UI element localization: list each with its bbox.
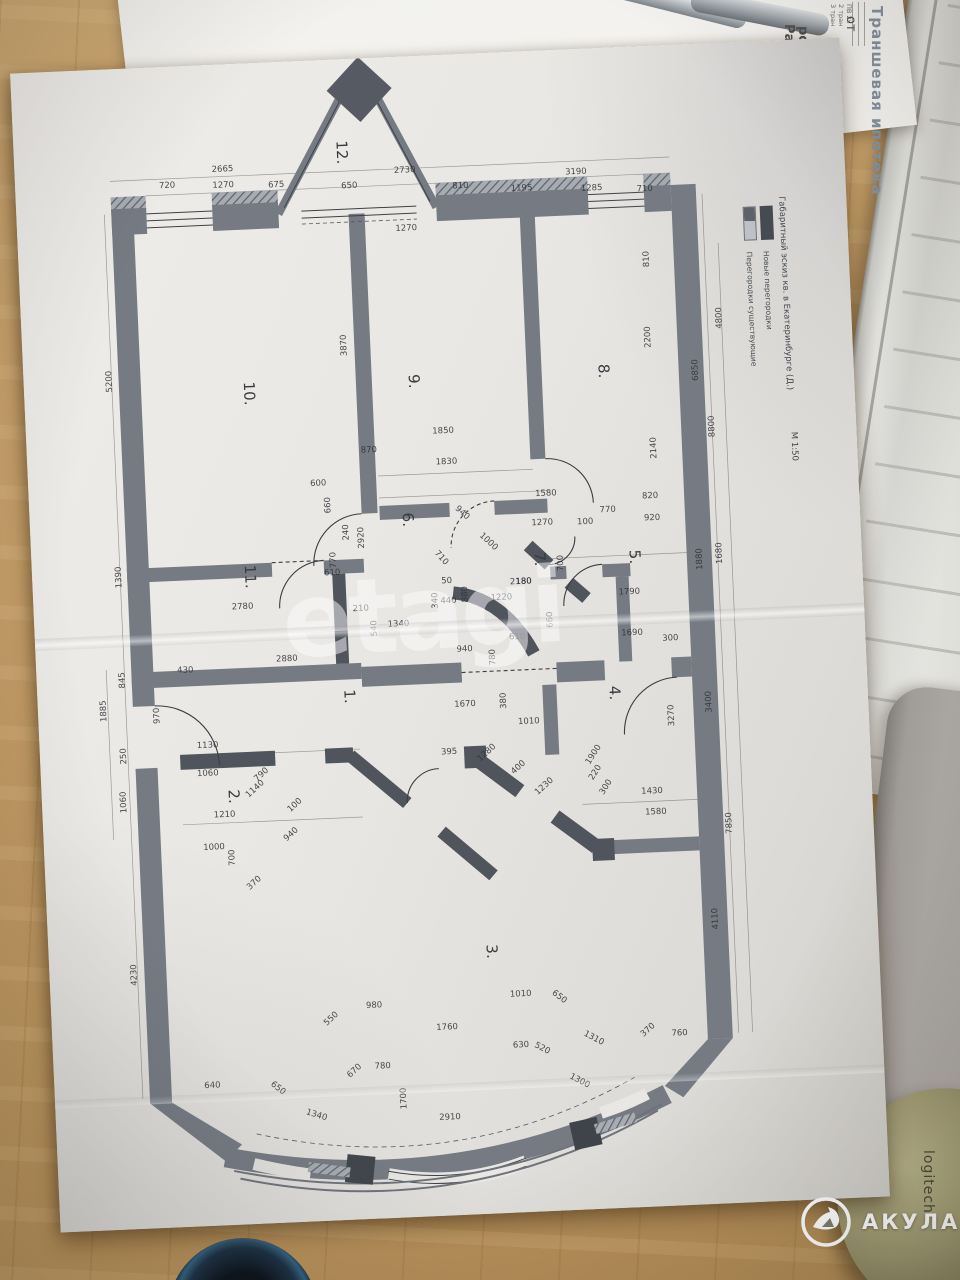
dimension-label: 1670 [454, 699, 476, 710]
dimension-label: 650 [341, 181, 358, 192]
dimension-label: 1430 [641, 786, 663, 797]
dimension-label: 1580 [535, 488, 557, 499]
dimension-label: 675 [268, 180, 285, 191]
dimension-label: 300 [598, 778, 615, 797]
top-bay [272, 54, 437, 225]
desk-photo: logitech Траншевая ипотека от ПВ 2х 2 тр… [0, 0, 960, 1280]
dimension-label: 2780 [232, 602, 254, 613]
dimension-label: 1885 [99, 700, 110, 722]
dimension-label: 720 [159, 181, 176, 192]
room-number: 1. [340, 689, 359, 704]
dimension-label: 3400 [704, 691, 715, 713]
dimension-label: 2665 [211, 164, 233, 175]
etagi-watermark: etagi [279, 544, 566, 683]
akula-label: АКУЛА [862, 1210, 960, 1234]
room-number: 11. [241, 564, 260, 589]
dimension-label: 1390 [114, 566, 125, 588]
dimension-label: 630 [513, 1040, 530, 1051]
room-number: 12. [332, 140, 351, 165]
dimension-label: 1690 [621, 628, 643, 639]
dimension-label: 3270 [666, 704, 677, 726]
dimension-label: 1880 [694, 548, 705, 570]
text-fragment: 3 тран [829, 4, 837, 26]
background-sheet-heading: Траншевая ипотека [868, 6, 886, 195]
dimension-label: 660 [323, 497, 334, 514]
dimension-label: 1830 [435, 457, 457, 468]
room-number: 3. [483, 944, 502, 959]
dimension-label: 810 [452, 181, 469, 192]
dimension-label: 395 [441, 747, 458, 758]
dimension-label: 1140 [244, 778, 267, 800]
room-number: 6. [399, 512, 418, 527]
dimension-label: 3870 [339, 334, 350, 356]
dimension-label: 1900 [584, 743, 604, 767]
fine-print-lines [852, 2, 870, 46]
dimension-label: 1195 [511, 183, 533, 194]
dimension-label: 1010 [510, 989, 532, 1000]
floor-plan-sheet: 2665720127067565027308101195127031901285… [10, 37, 890, 1232]
dimension-label: 1130 [197, 740, 219, 751]
dimension-label: 845 [117, 672, 128, 689]
akula-watermark-badge: АКУЛА [800, 1196, 960, 1248]
dimension-label: 5200 [104, 371, 115, 393]
dimension-label: 940 [453, 504, 472, 522]
dimension-label: 1060 [197, 768, 219, 779]
dimension-label: 1270 [395, 223, 417, 234]
dimension-label: 970 [152, 708, 163, 725]
dimension-label: 1230 [533, 775, 556, 797]
room-number: 5. [625, 549, 644, 564]
dimension-label: 400 [509, 758, 528, 776]
dimension-label: 4110 [710, 908, 721, 930]
shark-icon [800, 1196, 852, 1248]
dimension-label: 1680 [714, 542, 725, 564]
dimension-label: 650 [550, 988, 569, 1006]
dimension-label: 520 [533, 1040, 552, 1056]
dimension-label: 370 [639, 1021, 658, 1039]
dimension-label: 760 [671, 1028, 688, 1039]
dimension-label: 2920 [356, 527, 367, 549]
dimension-label: 1270 [212, 180, 234, 191]
dimension-label: 1790 [618, 587, 640, 598]
paper-shadow [42, 795, 480, 1233]
dimension-label: 7850 [724, 812, 735, 834]
dimension-label: 1850 [432, 426, 454, 437]
dimension-label: 870 [361, 445, 378, 456]
dimension-label: 250 [119, 748, 130, 765]
dimension-label: 430 [177, 665, 194, 676]
dimension-label: 1580 [645, 807, 667, 818]
dimension-label: 380 [499, 692, 510, 709]
text-fragment: 2 тран [837, 4, 845, 26]
room-number: 9. [405, 374, 424, 389]
dimension-label: 240 [341, 524, 352, 541]
paper-shadow [540, 37, 862, 550]
dimension-label: 1310 [582, 1029, 606, 1048]
dimension-label: 600 [310, 478, 327, 489]
blue-tape-roll [168, 1238, 318, 1280]
dimension-label: 1010 [518, 716, 540, 727]
room-number: 2. [225, 789, 244, 804]
dimension-label: 300 [662, 633, 679, 644]
room-number: 10. [240, 381, 259, 406]
dimension-label: 2730 [394, 165, 416, 176]
room-number: 4. [605, 685, 624, 700]
dimension-label: 1270 [531, 517, 553, 528]
